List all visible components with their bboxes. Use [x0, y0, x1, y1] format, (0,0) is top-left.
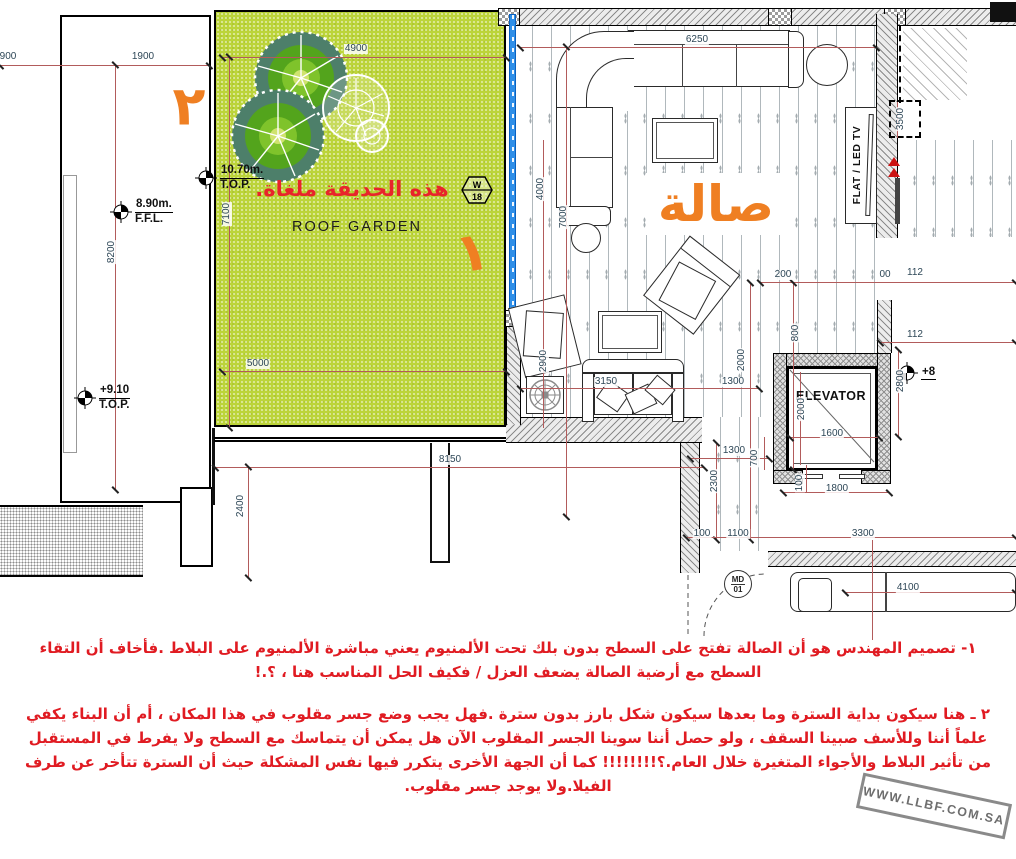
- dimension-label: 3150: [594, 377, 618, 387]
- dl: [115, 65, 116, 490]
- dl: [872, 540, 873, 640]
- dl: [222, 371, 507, 372]
- level-value: 8.90m.: [135, 198, 173, 213]
- bottom-right-wall: [768, 551, 1016, 567]
- corridor-left-wall: [680, 443, 700, 573]
- dimension-label: 112: [906, 268, 924, 278]
- lvl-txt: 8.90m.F.F.L.: [135, 198, 173, 227]
- level-datum: T.O.P.: [99, 399, 130, 413]
- wall-line: [430, 561, 450, 563]
- roof-garden-label: ROOF GARDEN: [292, 219, 422, 235]
- dimension-label: 4000: [536, 177, 546, 201]
- round-side-table: [571, 223, 601, 253]
- dimension-label: 8200: [107, 240, 117, 264]
- garden-cancel-note: هذه الحديقة ملغاة.: [255, 177, 448, 201]
- dimension-label: 1300: [722, 446, 746, 456]
- dl: [880, 342, 1016, 343]
- dimension-label: 7000: [559, 205, 569, 229]
- dimension-label: 100: [795, 474, 805, 493]
- hall-arabic-label: صالة: [646, 173, 786, 235]
- elevator-wall-top: [773, 353, 891, 367]
- note-paragraph-2: ٢ ـ هنا سيكون بداية السترة وما بعدها سيك…: [18, 702, 998, 798]
- dimension-label: 4900: [344, 44, 368, 54]
- tv-label: FLAT / LED TV: [851, 126, 863, 205]
- column-block: [768, 8, 792, 26]
- stair-side-floor: [898, 140, 1016, 237]
- dimension-label: 8150: [438, 455, 462, 465]
- dimension-label: 1900: [131, 52, 155, 62]
- dimension-label: 6250: [685, 35, 709, 45]
- dimension-label: 2900: [539, 349, 549, 373]
- path: [114, 212, 121, 219]
- dl: [750, 283, 751, 540]
- sofa-divider: [736, 44, 737, 87]
- dl: [215, 467, 705, 468]
- sofa-divider: [570, 157, 613, 158]
- dl: [760, 282, 1016, 283]
- hall-top-wall: [498, 8, 1016, 26]
- dimension-label: 2300: [710, 469, 720, 493]
- elevator-wall-bottom-right: [861, 470, 891, 484]
- dimension-label: 3500: [896, 107, 906, 131]
- dimension-label: 900: [0, 52, 17, 62]
- annotation-notes: ١- تصميم المهندس هو أن الصالة تفتح على ا…: [18, 636, 998, 816]
- dl: [520, 388, 760, 389]
- level-marker-icon: [195, 167, 217, 189]
- floor-plan: W 18: [0, 0, 1016, 640]
- level-value: +9.10: [99, 384, 130, 399]
- existing-concrete-area: [0, 505, 143, 577]
- dimension-label: 2000: [797, 397, 807, 421]
- level-marker-icon: [110, 201, 132, 223]
- dl: [222, 57, 507, 58]
- dimension-label: 2000: [737, 348, 747, 372]
- note-paragraph-1: ١- تصميم المهندس هو أن الصالة تفتح على ا…: [18, 636, 998, 684]
- dl: [520, 47, 877, 48]
- dimension-label: 1100: [726, 529, 750, 539]
- dl: [845, 592, 1016, 593]
- dl: [793, 283, 794, 470]
- dimension-label: 1800: [825, 484, 849, 494]
- dimension-label: 112: [906, 330, 924, 340]
- door-tag-md01: MD01: [724, 570, 752, 598]
- dl: [0, 65, 210, 66]
- elevator-wall-right: [877, 353, 891, 484]
- elevator-door-panel: [839, 474, 865, 479]
- elevator-wall-left: [773, 353, 787, 484]
- corner-block: [990, 2, 1016, 22]
- lvl-txt: +9.10T.O.P.: [99, 384, 130, 413]
- level-marker-top-1: +9.10T.O.P.: [74, 384, 130, 413]
- fan-side-table: [526, 376, 564, 414]
- path: [78, 398, 85, 405]
- dimension-label: 100: [693, 529, 712, 539]
- coffee-table-2-inner: [602, 315, 658, 349]
- door-tag-top: MD: [732, 575, 744, 584]
- stair-treads: [903, 28, 967, 100]
- dimension-label: 2400: [236, 494, 246, 518]
- sofa-divider: [682, 44, 683, 87]
- level-marker-top-2: 10.70m.T.O.P.: [195, 164, 264, 193]
- stair-break-line: [899, 25, 901, 103]
- dl: [764, 437, 765, 470]
- path: [199, 178, 206, 185]
- dimension-label: 1300: [721, 377, 745, 387]
- path: [85, 391, 92, 398]
- level-marker-ffl: 8.90m.F.F.L.: [110, 198, 173, 227]
- loveseat-arm: [672, 373, 684, 422]
- floor-plan-screenshot: W 18: [0, 0, 1016, 859]
- wall-line: [430, 443, 432, 563]
- dimension-label: 00: [878, 270, 891, 280]
- level-value: +8: [921, 366, 936, 381]
- path: [907, 366, 914, 373]
- parapet-line: [214, 437, 506, 442]
- dimension-label: 7100: [222, 202, 232, 226]
- path: [206, 171, 213, 178]
- loveseat-arm: [582, 373, 594, 422]
- dl: [566, 47, 567, 517]
- dl: [229, 57, 230, 428]
- lvl-txt: +8: [921, 366, 936, 381]
- coffee-table-inner: [656, 122, 714, 159]
- loveseat-back: [582, 359, 684, 373]
- stair-railing: [895, 178, 900, 224]
- level-marker-icon: [74, 387, 96, 409]
- sofa-armrest: [788, 31, 804, 88]
- round-chair: [806, 44, 848, 86]
- level-datum: F.F.L.: [135, 213, 173, 227]
- dimension-label: 4100: [896, 583, 920, 593]
- window-strip: [509, 14, 516, 310]
- dimension-label: 1600: [820, 429, 844, 439]
- step-block: [180, 487, 213, 567]
- dimension-label: 5000: [246, 359, 270, 369]
- dimension-label: 700: [750, 449, 760, 468]
- bottom-sofa-cushion: [798, 578, 832, 612]
- dimension-label: 3300: [851, 529, 875, 539]
- dl: [248, 467, 249, 578]
- dimension-label: 200: [774, 270, 793, 280]
- annotation-number-2: ٢: [173, 75, 206, 138]
- dl: [806, 465, 807, 492]
- door-tag-bottom: 01: [731, 584, 746, 594]
- dimension-label: 2800: [896, 369, 906, 393]
- dimension-label: 800: [791, 324, 801, 343]
- path: [121, 205, 128, 212]
